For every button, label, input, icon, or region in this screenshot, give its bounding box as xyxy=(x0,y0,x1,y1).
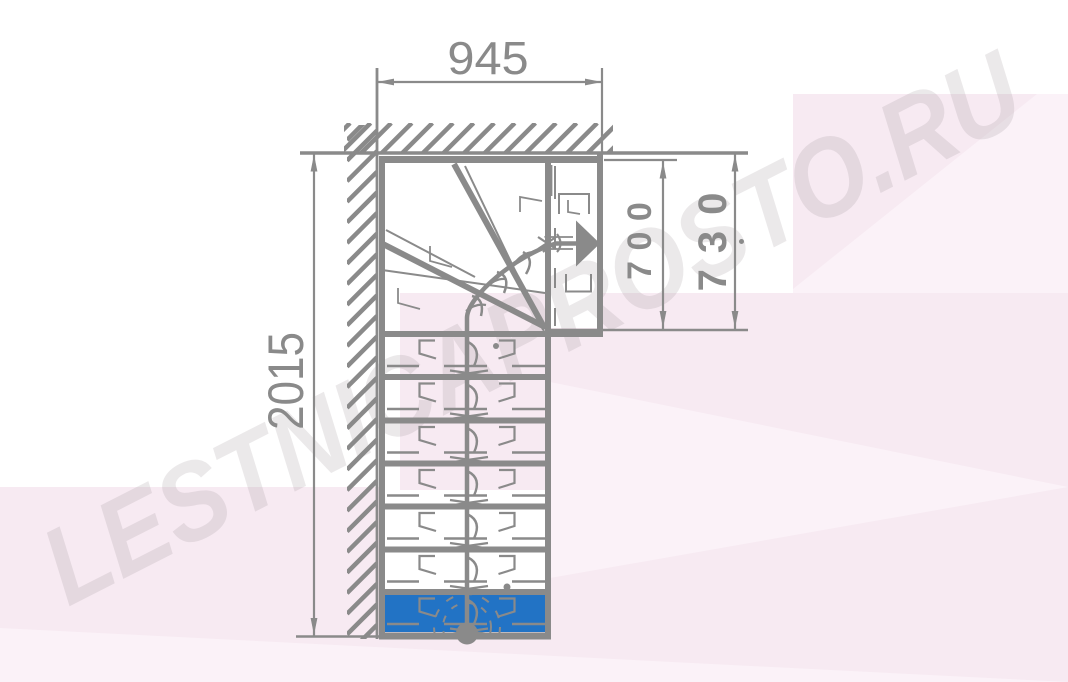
svg-text:700: 700 xyxy=(621,192,659,280)
svg-text:2015: 2015 xyxy=(257,332,313,430)
svg-text:945: 945 xyxy=(447,33,528,84)
svg-text:730: 730 xyxy=(691,177,735,292)
